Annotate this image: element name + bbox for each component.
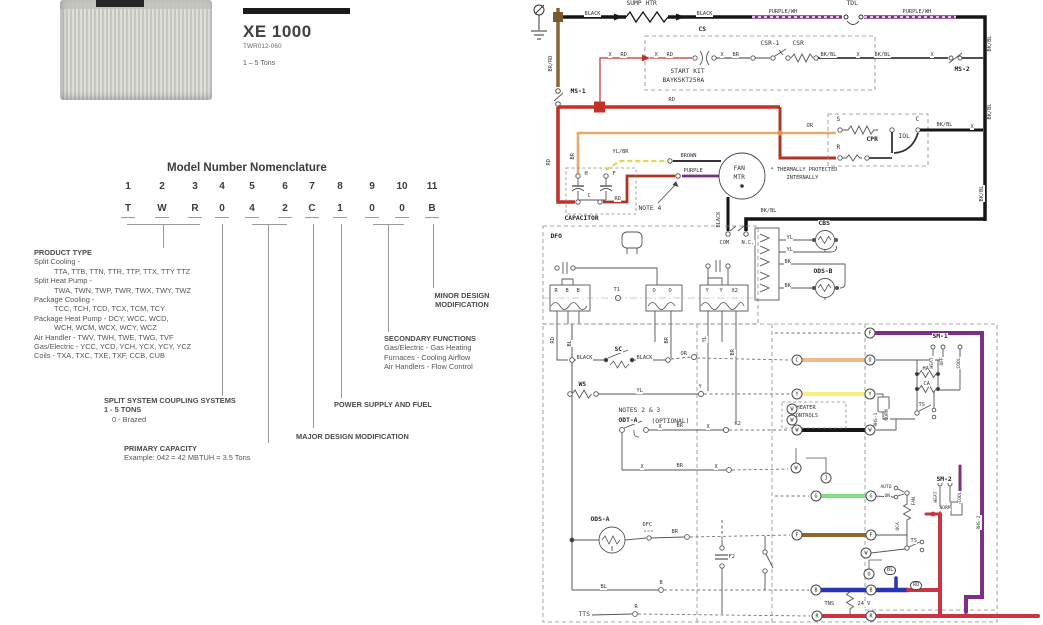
diagram-label: CPR: [866, 136, 878, 143]
diagram-label: BLACK: [716, 211, 722, 228]
product-card: XE 1000 TWR012-060 1 – 5 Tons: [243, 8, 383, 67]
major-design-heading: MAJOR DESIGN MODIFICATION: [296, 432, 409, 441]
diagram-label: TS: [918, 402, 925, 408]
diagram-label: BK/BL: [760, 208, 777, 214]
diagram-label: X: [706, 424, 710, 430]
code-underline: [215, 217, 229, 218]
diagram-label: R: [836, 144, 841, 151]
diagram-label: B: [565, 288, 569, 294]
code-underline: [188, 217, 202, 218]
diagram-label: RD: [910, 581, 922, 590]
diagram-label: T1: [613, 287, 620, 293]
diagram-label: BR/RD: [548, 55, 554, 72]
nomenclature-position: 3: [185, 181, 205, 192]
diagram-label: CSR-1: [760, 40, 780, 47]
code-underline: [333, 217, 347, 218]
diagram-label: BR: [664, 337, 670, 344]
diagram-label: N.C.: [741, 240, 755, 246]
terminal-r: R: [812, 611, 823, 622]
diagram-label: 24 V: [857, 601, 871, 607]
product-type-line: Package Cooling -: [34, 295, 191, 304]
nomenclature-position: 1: [118, 181, 138, 192]
diagram-label: Y: [719, 288, 723, 294]
product-model-number: TWR012-060: [243, 43, 383, 50]
diagram-label: BR: [732, 52, 739, 58]
diagram-label: C: [915, 116, 920, 123]
diagram-label: O: [652, 288, 656, 294]
diagram-label: BR: [730, 349, 736, 356]
diagram-label: BLACK: [576, 355, 593, 361]
diagram-label: ODS-B: [813, 268, 833, 275]
nomenclature-position: 5: [242, 181, 262, 192]
terminal-g: G: [866, 491, 877, 502]
diagram-label: SUMP HTR: [626, 0, 657, 7]
product-type-line: Air Handler - TWV, TWH, TWE, TWG, TVF: [34, 333, 191, 342]
terminal-y: Y: [865, 389, 876, 400]
diagram-label: BAYKSKT250A: [662, 77, 705, 84]
product-type-line: Split Cooling -: [34, 257, 191, 266]
nomenclature-code-char: 0: [212, 203, 232, 214]
terminal-j: J: [821, 473, 832, 484]
nomenclature-position: 9: [362, 181, 382, 192]
power-supply-heading: POWER SUPPLY AND FUEL: [334, 400, 432, 409]
nomenclature-position: 2: [152, 181, 172, 192]
terminal-w: W: [792, 425, 803, 436]
diagram-label: COM: [719, 240, 730, 246]
terminal-c: C: [792, 355, 803, 366]
connector-line: [433, 224, 434, 288]
product-type-line: TCC, TCH, TCD, TCX, TCM, TCY: [34, 304, 191, 313]
diagram-label: TDL: [846, 0, 858, 7]
nomenclature-code-char: B: [422, 203, 442, 214]
nomenclature-code-char: C: [302, 203, 322, 214]
diagram-label: MS-2: [954, 66, 970, 73]
diagram-label: YL/BR: [612, 149, 629, 155]
diagram-label: YL: [702, 336, 708, 343]
diagram-label: H: [584, 171, 588, 177]
diagram-label: X: [714, 464, 718, 470]
diagram-label: SM-1: [932, 333, 948, 340]
diagram-label: BK/BL: [874, 52, 891, 58]
diagram-label: MS-1: [570, 88, 586, 95]
product-type-line: Split Heat Pump -: [34, 276, 191, 285]
diagram-label: YL: [786, 247, 793, 253]
diagram-label: X: [654, 52, 658, 58]
diagram-label: O: [668, 288, 672, 294]
product-type-line: Gas/Electric - YCC, YCD, YCH, YCX, YCY, …: [34, 342, 191, 351]
diagram-label: RHS-1: [874, 412, 879, 427]
nomenclature-position: 11: [422, 181, 442, 192]
diagram-label: X2: [731, 288, 738, 294]
divider-bar: [243, 8, 350, 14]
diagram-label: BK/BL: [987, 103, 993, 120]
diagram-label: CBS: [818, 220, 830, 227]
nomenclature-position: 8: [330, 181, 350, 192]
diagram-label: NOTES 2 & 3: [618, 407, 661, 414]
product-type-line: Coils - TXA, TXC, TXE, TXF, CCB, CUB: [34, 351, 191, 360]
diagram-label: BR: [676, 463, 683, 469]
nomenclature-code-char: 1: [330, 203, 350, 214]
secondary-functions-heading: SECONDARY FUNCTIONS: [384, 334, 476, 343]
label-product-type: PRODUCT TYPE Split Cooling - TTA, TTB, T…: [34, 248, 191, 361]
connector-line: [313, 224, 314, 428]
wiring-diagram: SUMP HTRBLACKBLACKPURPLE/WHTDLPURPLE/WHB…: [530, 0, 1043, 625]
connector-line: [163, 224, 164, 248]
minor-design-line: MINOR DESIGN: [420, 291, 504, 300]
diagram-label: START KIT: [670, 68, 705, 75]
diagram-label: COOL: [958, 491, 963, 503]
terminal-g: G: [811, 491, 822, 502]
label-minor-design: MINOR DESIGN MODIFICATION: [420, 291, 504, 310]
diagram-label: X: [658, 424, 662, 430]
diagram-label: X: [720, 52, 724, 58]
product-series: XE 1000: [243, 22, 383, 42]
nomenclature-position: 10: [392, 181, 412, 192]
diagram-label: RHS-2: [977, 515, 982, 530]
nomenclature-position: 7: [302, 181, 322, 192]
terminal-o: O: [865, 355, 876, 366]
label-primary-capacity: PRIMARY CAPACITY Example: 042 = 42 MBTUH…: [124, 444, 250, 463]
diagram-label: BK/BL: [987, 35, 993, 52]
code-underline: [245, 217, 259, 218]
diagram-label: SC: [614, 346, 623, 353]
diagram-label: CAPACITOR: [564, 215, 599, 222]
diagram-label: PURPLE/WH: [768, 9, 798, 15]
product-type-line: Package Heat Pump - DCY, WCC, WCD,: [34, 314, 191, 323]
nomenclature-position: 6: [275, 181, 295, 192]
product-type-line: TWA, TWN, TWP, TWR, TWX, TWY, TWZ: [34, 286, 191, 295]
diagram-label: R: [554, 288, 558, 294]
terminal-w: W: [865, 425, 876, 436]
nomenclature-code-char: R: [185, 203, 205, 214]
product-type-line: TTA, TTB, TTN, TTR, TTP, TTX, TTY TTZ: [34, 267, 191, 276]
diagram-label: BK/BL: [936, 122, 953, 128]
diagram-label: X: [930, 52, 934, 58]
diagram-label: TTS: [578, 611, 590, 618]
diagram-label: BK/BL: [979, 185, 985, 202]
code-underline: [305, 217, 319, 218]
code-underline: [395, 217, 409, 218]
nomenclature-position: 4: [212, 181, 232, 192]
diagram-label: RD: [546, 159, 552, 166]
ac-unit-photo: [60, 0, 212, 100]
diagram-label: BK: [784, 283, 791, 289]
diagram-label: OFF: [940, 357, 945, 366]
diagram-label: (OPTIONAL): [651, 418, 690, 425]
diagram-label: PURPLE/WH: [902, 9, 932, 15]
diagram-label: COOL: [957, 357, 962, 369]
wiring-diagram-labels: SUMP HTRBLACKBLACKPURPLE/WHTDLPURPLE/WHB…: [530, 0, 1043, 625]
diagram-label: CS: [698, 26, 707, 33]
diagram-label: RD: [666, 52, 673, 58]
diagram-label: HEAT: [930, 357, 935, 369]
terminal-w: W: [787, 415, 798, 426]
secondary-functions-line: Gas/Electric - Gas Heating: [384, 343, 476, 352]
terminal-w: W: [791, 463, 802, 474]
diagram-label: SM-2: [936, 476, 952, 483]
diagram-label: AUTO: [880, 485, 892, 490]
diagram-label: NORM: [939, 506, 951, 511]
secondary-functions-line: Furnaces - Cooling Airflow: [384, 353, 476, 362]
diagram-label: DFC: [642, 522, 653, 528]
nomenclature-code-char: 0: [392, 203, 412, 214]
diagram-label: CSR: [792, 40, 804, 47]
code-underline: [121, 217, 135, 218]
diagram-label: Y: [705, 288, 709, 294]
diagram-label: HA: [922, 366, 929, 372]
diagram-label: BK: [784, 259, 791, 265]
diagram-label: BL: [567, 340, 573, 347]
diagram-label: S: [836, 116, 841, 123]
diagram-label: BL: [600, 584, 607, 590]
primary-capacity-heading: PRIMARY CAPACITY: [124, 444, 250, 453]
nomenclature-code-char: 0: [362, 203, 382, 214]
label-power-supply: POWER SUPPLY AND FUEL: [334, 400, 432, 409]
terminal-b: B: [811, 585, 822, 596]
diagram-label: HEAT: [934, 491, 939, 503]
diagram-label: BROWN: [680, 153, 697, 159]
diagram-label: YL: [636, 388, 643, 394]
nomenclature-code-char: 4: [242, 203, 262, 214]
diagram-label: BR: [676, 423, 683, 429]
minor-design-line: MODIFICATION: [420, 300, 504, 309]
terminal-f: F: [866, 530, 877, 541]
nomenclature-code-char: T: [118, 203, 138, 214]
diagram-label: HEATER: [796, 405, 816, 411]
nomenclature-code-char: 2: [275, 203, 295, 214]
terminal-f: F: [865, 328, 876, 339]
diagram-label: BL: [884, 566, 896, 575]
diagram-label: OR: [806, 123, 813, 129]
diagram-label: X: [640, 464, 644, 470]
diagram-label: F: [612, 171, 616, 177]
connector-line: [341, 224, 342, 398]
diagram-label: ODS-A: [590, 516, 610, 523]
code-underline: [155, 217, 169, 218]
diagram-label: IOL: [898, 133, 910, 140]
code-underline: [425, 217, 439, 218]
diagram-label: PURPLE: [683, 168, 703, 174]
terminal-b: B: [866, 585, 877, 596]
diagram-label: INTERNALLY: [786, 175, 819, 181]
primary-capacity-example: Example: 042 = 42 MBTUH = 3.5 Tons: [124, 453, 250, 462]
nomenclature-title: Model Number Nomenclature: [167, 162, 327, 174]
code-underline: [365, 217, 379, 218]
diagram-label: X: [608, 52, 612, 58]
diagram-label: Y: [698, 384, 702, 390]
diagram-label: NOTE 4: [638, 205, 662, 212]
connector-line: [268, 224, 269, 443]
diagram-label: X: [856, 52, 860, 58]
code-underline: [278, 217, 292, 218]
diagram-label: BLACK: [636, 355, 653, 361]
diagram-label: CA: [923, 381, 930, 387]
diagram-label: FAN: [733, 165, 745, 172]
diagram-label: TNS: [824, 601, 835, 607]
diagram-label: ODT-A: [618, 417, 638, 424]
diagram-label: R: [634, 604, 638, 610]
connector-line: [252, 224, 287, 225]
nomenclature-panel: XE 1000 TWR012-060 1 – 5 Tons Model Numb…: [0, 0, 530, 625]
diagram-label: OCA: [896, 522, 901, 531]
diagram-label: K2: [734, 421, 741, 427]
label-secondary-functions: SECONDARY FUNCTIONS Gas/Electric - Gas H…: [384, 334, 476, 372]
terminal-u: U: [864, 569, 875, 580]
diagram-label: WS: [578, 381, 587, 388]
diagram-label: F2: [728, 554, 735, 560]
split-system-heading: SPLIT SYSTEM COUPLING SYSTEMS: [104, 396, 236, 405]
diagram-label: RD: [550, 337, 556, 344]
diagram-label: MTR: [733, 174, 745, 181]
connector-line: [388, 224, 389, 332]
diagram-label: ON: [884, 494, 891, 499]
diagram-label: RD: [614, 196, 621, 202]
product-type-heading: PRODUCT TYPE: [34, 248, 191, 257]
diagram-label: BK/BL: [820, 52, 837, 58]
terminal-w: W: [787, 404, 798, 415]
label-major-design: MAJOR DESIGN MODIFICATION: [296, 432, 409, 441]
label-split-system: SPLIT SYSTEM COUPLING SYSTEMS 1 - 5 TONS…: [104, 396, 236, 424]
diagram-label: * THERMALLY PROTECTED: [770, 167, 838, 173]
diagram-label: BR: [671, 529, 678, 535]
diagram-label: B: [659, 580, 663, 586]
diagram-label: YL: [786, 235, 793, 241]
connector-line: [222, 224, 223, 396]
diagram-label: C: [587, 193, 591, 199]
product-capacity: 1 – 5 Tons: [243, 60, 383, 67]
terminal-y: Y: [792, 389, 803, 400]
product-type-line: WCH, WCM, WCX, WCY, WCZ: [34, 323, 191, 332]
terminal-w: W: [861, 548, 872, 559]
diagram-label: RD: [668, 97, 675, 103]
terminal-r: R: [866, 611, 877, 622]
diagram-label: DFO: [550, 233, 562, 240]
diagram-label: BLACK: [696, 11, 713, 17]
diagram-label: X: [970, 124, 974, 130]
secondary-functions-line: Air Handlers - Flow Control: [384, 362, 476, 371]
split-system-line: 0 - Brazed: [104, 415, 236, 424]
nomenclature-code-char: W: [152, 203, 172, 214]
page: XE 1000 TWR012-060 1 – 5 Tons Model Numb…: [0, 0, 1043, 625]
diagram-label: BLACK: [584, 11, 601, 17]
diagram-label: B: [576, 288, 580, 294]
terminal-f: F: [792, 530, 803, 541]
diagram-label: RD: [620, 52, 627, 58]
diagram-label: FAN: [912, 497, 917, 506]
diagram-label: TS: [910, 538, 917, 544]
split-system-line: 1 - 5 TONS: [104, 405, 236, 414]
diagram-label: NORM: [885, 409, 890, 421]
diagram-label: OR: [680, 351, 687, 357]
diagram-label: BR: [570, 153, 576, 160]
